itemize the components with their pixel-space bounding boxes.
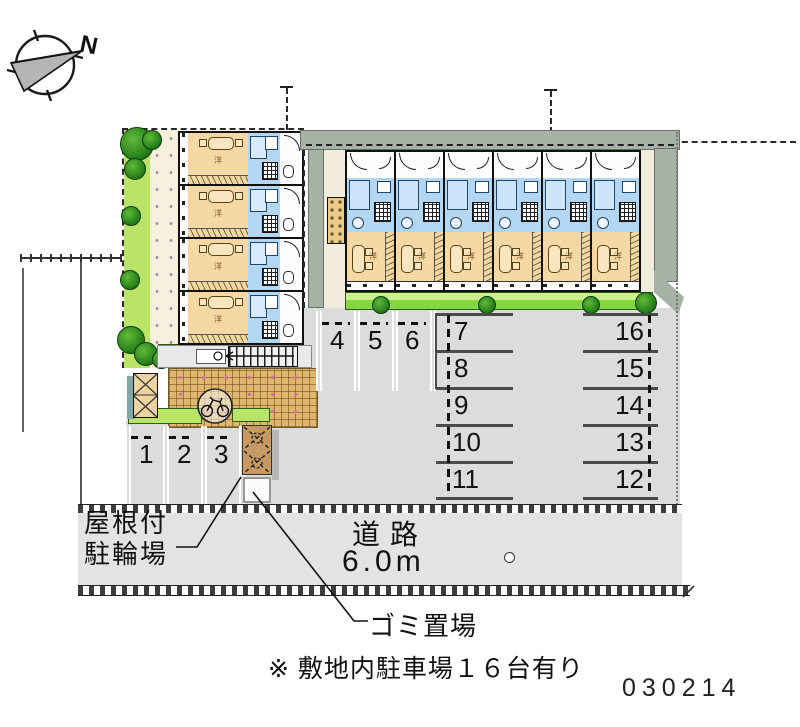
- apartment-unit: 洋: [445, 152, 494, 290]
- parking-stall-number: 7: [454, 317, 468, 345]
- bathroom-area: [248, 239, 280, 290]
- bathtub-icon: [545, 180, 566, 210]
- walkway-between-buildings: [308, 148, 324, 308]
- bike-shelter: [242, 425, 272, 475]
- table-icon: [548, 245, 561, 273]
- table-icon: [208, 190, 234, 203]
- appliance-icon: [374, 202, 391, 222]
- balcony: [347, 281, 394, 290]
- appliance-icon: [570, 202, 587, 222]
- room-label: 洋: [214, 263, 222, 271]
- bathtub-icon: [398, 180, 419, 210]
- sink-icon: [450, 217, 462, 229]
- tree-icon: [120, 270, 140, 290]
- chair-icon: [561, 262, 569, 270]
- table-icon: [208, 137, 234, 150]
- room-label: 洋: [565, 253, 573, 261]
- bathroom-area: [396, 178, 443, 232]
- bike-shelter-label-line1: 屋根付: [84, 508, 168, 539]
- appliance-icon: [262, 321, 278, 339]
- parking-stall-number: 6: [405, 326, 419, 354]
- sink-icon: [622, 181, 636, 193]
- appliance-icon: [262, 162, 278, 180]
- boundary-marker-line: [550, 91, 552, 133]
- table-icon: [352, 245, 365, 273]
- unit-entry: [347, 152, 394, 178]
- closet: [483, 232, 492, 282]
- door-arc-icon: [284, 294, 300, 310]
- door-arc-icon: [428, 157, 440, 169]
- unit-entry: [592, 152, 639, 178]
- room-label: 洋: [467, 253, 475, 261]
- sink-icon: [265, 242, 278, 256]
- gravel-path: [150, 130, 178, 368]
- parking-stall-number: 14: [596, 391, 644, 419]
- bathtub-icon: [496, 180, 517, 210]
- toilet-icon: [283, 218, 294, 231]
- unit-entry: [396, 152, 443, 178]
- boundary-marker-line: [286, 88, 288, 130]
- apartment-building-left: 洋 洋: [178, 131, 304, 345]
- chair-icon: [610, 262, 618, 270]
- door-arc-icon: [284, 135, 300, 151]
- apartment-unit: 洋: [347, 152, 396, 290]
- toilet-icon: [283, 165, 294, 178]
- chair-icon: [512, 262, 520, 270]
- room-label: 洋: [214, 157, 222, 165]
- chair-icon: [199, 192, 207, 200]
- road-edge-hatch: [78, 585, 690, 596]
- sink-icon: [377, 181, 391, 193]
- door-arc-icon: [575, 157, 587, 169]
- closet: [434, 232, 443, 282]
- garbage-label: ゴミ置場: [369, 606, 477, 643]
- unit-entry: [543, 152, 590, 178]
- table-icon: [499, 245, 512, 273]
- parking-stall-number: 13: [596, 428, 644, 456]
- road-width-label: 6.0m: [342, 545, 425, 579]
- living-room: 洋: [347, 232, 394, 282]
- door-arc-icon: [624, 157, 636, 169]
- closet: [188, 175, 248, 184]
- appliance-icon: [619, 202, 636, 222]
- chair-icon: [199, 245, 207, 253]
- boundary-line: [303, 150, 305, 308]
- chair-icon: [235, 192, 243, 200]
- bathroom-area: [347, 178, 394, 232]
- balcony: [396, 281, 443, 290]
- closet: [188, 281, 248, 290]
- bathtub-icon: [447, 180, 468, 210]
- door-arc-icon: [379, 157, 391, 169]
- bike-shelter-label: 屋根付 駐輪場: [84, 508, 168, 570]
- balcony: [543, 281, 590, 290]
- chair-icon: [235, 139, 243, 147]
- appliance-icon: [262, 268, 278, 286]
- sink-icon: [524, 181, 538, 193]
- door-arc-icon: [477, 157, 489, 169]
- living-room: 洋: [543, 232, 590, 282]
- stall-dash: [447, 315, 450, 497]
- unit-entry: [280, 239, 302, 290]
- table-icon: [450, 245, 463, 273]
- sink-icon: [401, 217, 413, 229]
- bike-shelter-label-line2: 駐輪場: [84, 539, 168, 570]
- appliance-icon: [262, 215, 278, 233]
- table-icon: [401, 245, 414, 273]
- apartment-unit: 洋: [592, 152, 639, 290]
- appliance-icon: [521, 202, 538, 222]
- room-label: 洋: [214, 210, 222, 218]
- fence-line: [20, 254, 122, 262]
- balcony: [445, 281, 492, 290]
- tree-icon: [635, 292, 657, 314]
- living-room: 洋: [188, 292, 248, 343]
- room-label: 洋: [614, 253, 622, 261]
- apartment-unit: 洋: [180, 133, 302, 186]
- parking-stall-number: 10: [452, 428, 481, 456]
- tree-icon: [478, 296, 496, 314]
- sink-icon: [573, 181, 587, 193]
- bike-rack: [327, 197, 345, 244]
- apartment-unit: 洋: [396, 152, 445, 290]
- corridor-band: [300, 130, 680, 150]
- apartment-unit: 洋: [543, 152, 592, 290]
- chair-icon: [235, 298, 243, 306]
- site-boundary-right: [676, 132, 678, 505]
- living-room: 洋: [494, 232, 541, 282]
- bathroom-area: [494, 178, 541, 232]
- tree-icon: [121, 206, 141, 226]
- parking-stall-number: 15: [596, 354, 644, 382]
- bathtub-icon: [594, 180, 615, 210]
- chair-icon: [199, 139, 207, 147]
- lot-line: [22, 268, 24, 432]
- closet: [532, 232, 541, 282]
- closet: [630, 232, 639, 282]
- room-label: 洋: [516, 253, 524, 261]
- corridor: [641, 150, 654, 292]
- sink-icon: [499, 217, 511, 229]
- sink-icon: [426, 181, 440, 193]
- chair-icon: [235, 245, 243, 253]
- unit-entry: [280, 292, 302, 343]
- parking-stall-number: 16: [596, 317, 644, 345]
- room-label: 洋: [418, 253, 426, 261]
- bathroom-area: [592, 178, 639, 232]
- apartment-unit: 洋: [494, 152, 543, 290]
- note-text: ※ 敷地内駐車場１６台有り: [268, 649, 584, 685]
- boundary-line: [306, 144, 674, 146]
- door-arc-icon: [284, 188, 300, 204]
- table-icon: [208, 296, 234, 309]
- chair-icon: [414, 262, 422, 270]
- door-arc-icon: [526, 157, 538, 169]
- living-room: 洋: [592, 232, 639, 282]
- chair-icon: [365, 262, 373, 270]
- shelter-shadow: [272, 430, 279, 480]
- tree-icon: [582, 296, 600, 314]
- sink-icon: [265, 189, 278, 203]
- apartment-unit: 洋: [180, 292, 302, 343]
- appliance-icon: [423, 202, 440, 222]
- parking-stall-number: 5: [368, 326, 382, 354]
- table-icon: [597, 245, 610, 273]
- living-room: 洋: [396, 232, 443, 282]
- sink-icon: [265, 136, 278, 150]
- balcony: [592, 281, 639, 290]
- appliance-icon: [472, 202, 489, 222]
- closet: [188, 334, 248, 343]
- room-label: 洋: [369, 253, 377, 261]
- living-room: 洋: [445, 232, 492, 282]
- door-arc-icon: [497, 153, 514, 170]
- parking-stall-number: 8: [454, 354, 468, 382]
- garbage-area-box: [243, 477, 271, 503]
- bathroom-area: [248, 292, 280, 343]
- stall-dash: [648, 315, 651, 497]
- tree-icon: [124, 158, 146, 180]
- hedge: [345, 292, 653, 310]
- site-plan-canvas: N 洋: [0, 0, 800, 727]
- parking-stall-number: 3: [214, 440, 228, 468]
- sink-icon: [265, 295, 278, 309]
- apartment-unit: 洋: [180, 186, 302, 239]
- bathroom-area: [543, 178, 590, 232]
- table-icon: [208, 243, 234, 256]
- closet: [385, 232, 394, 282]
- boundary-line: [672, 141, 796, 143]
- bathroom-area: [248, 186, 280, 237]
- planting-strip: [232, 408, 270, 422]
- parking-stall-number: 11: [452, 465, 479, 493]
- parking-stall-number: 1: [139, 440, 153, 468]
- door-arc-icon: [546, 153, 563, 170]
- parking-stall-number: 4: [330, 326, 344, 354]
- manhole-icon: [504, 552, 515, 563]
- corridor-band: [654, 148, 678, 282]
- door-arc-icon: [448, 153, 465, 170]
- unit-entry: [280, 186, 302, 237]
- sink-icon: [548, 217, 560, 229]
- unit-entry: [280, 133, 302, 184]
- living-room: 洋: [188, 239, 248, 290]
- lot-line: [80, 262, 82, 505]
- bathtub-icon: [349, 180, 370, 210]
- closet: [188, 228, 248, 237]
- door-arc-icon: [350, 153, 367, 170]
- parking-stall-number: 12: [596, 465, 644, 493]
- living-room: 洋: [188, 186, 248, 237]
- sink-icon: [597, 217, 609, 229]
- drawing-number: 030214: [622, 674, 741, 703]
- closet: [581, 232, 590, 282]
- landing: [196, 349, 226, 364]
- toilet-icon: [283, 324, 294, 337]
- bathroom-area: [445, 178, 492, 232]
- toilet-icon: [283, 271, 294, 284]
- bathroom-area: [248, 133, 280, 184]
- sink-icon: [352, 217, 364, 229]
- door-arc-icon: [284, 241, 300, 257]
- parking-stall-number: 2: [177, 440, 191, 468]
- chair-icon: [199, 298, 207, 306]
- storage-box: [133, 373, 158, 418]
- room-label: 洋: [214, 316, 222, 324]
- parking-stall-number: 9: [454, 391, 468, 419]
- tree-icon: [142, 130, 162, 150]
- living-room: 洋: [188, 133, 248, 184]
- apartment-building-right: 洋 洋: [345, 150, 641, 292]
- stairs-icon: [228, 346, 298, 367]
- unit-entry: [445, 152, 492, 178]
- unit-entry: [494, 152, 541, 178]
- apartment-unit: 洋: [180, 239, 302, 292]
- sink-icon: [475, 181, 489, 193]
- door-arc-icon: [399, 153, 416, 170]
- chair-icon: [463, 262, 471, 270]
- tree-icon: [372, 296, 390, 314]
- door-arc-icon: [595, 153, 612, 170]
- balcony: [494, 281, 541, 290]
